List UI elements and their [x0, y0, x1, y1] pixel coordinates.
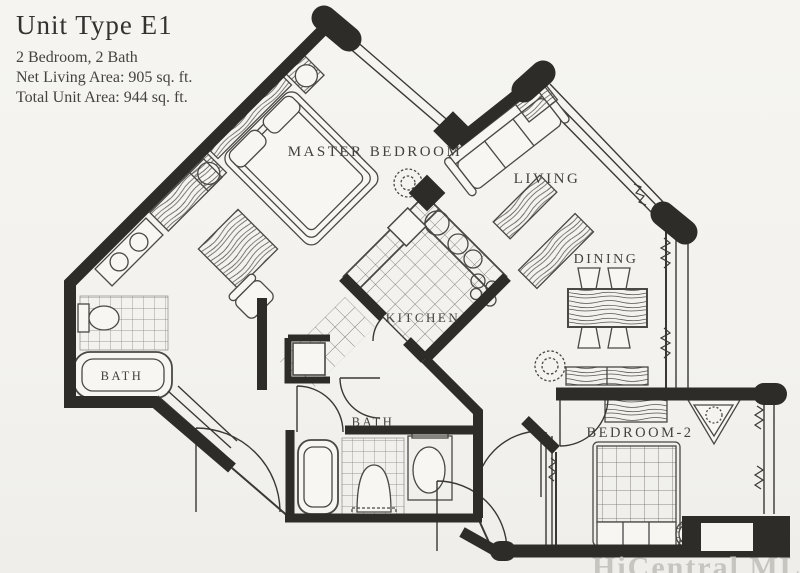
title-block: Unit Type E1 2 Bedroom, 2 Bath Net Livin… — [16, 10, 192, 108]
bedroom2-dresser — [605, 399, 667, 422]
washer-closet-unit — [293, 343, 325, 375]
label-master-bedroom: MASTER BEDROOM — [288, 144, 463, 160]
dining-chair — [608, 268, 630, 289]
master-rug — [198, 209, 277, 288]
bedroom2-pillows — [597, 522, 676, 546]
bedroom2-bed-quilt — [597, 446, 676, 522]
dining-window — [676, 232, 688, 388]
plant-dining — [535, 351, 565, 381]
label-dining: DINING — [574, 252, 639, 267]
column-cap-living-peak — [524, 73, 543, 90]
sink-2 — [413, 447, 445, 493]
toilet-bowl — [89, 306, 119, 330]
unit-title: Unit Type E1 — [16, 10, 192, 41]
dining-set — [566, 268, 648, 385]
floorplan-page: MASTER BEDROOM LIVING DINING KITCHEN BAT… — [0, 0, 800, 573]
unit-subtitle: 2 Bedroom, 2 Bath — [16, 48, 192, 68]
label-bath-1: BATH — [101, 369, 144, 383]
watermark: HiCentral MLS — [592, 551, 800, 573]
door-hall-center — [340, 378, 380, 418]
total-unit-area: Total Unit Area: 944 sq. ft. — [16, 88, 192, 108]
label-kitchen: KITCHEN — [386, 310, 461, 325]
entry-angled-wall — [462, 532, 494, 550]
toilet-tank — [78, 304, 89, 332]
dining-chair — [578, 268, 600, 289]
door-entry-b — [475, 431, 541, 497]
bedroom2-window — [764, 402, 774, 514]
column-cap-master-peak — [324, 18, 349, 39]
label-bedroom-2: BEDROOM-2 — [586, 425, 693, 441]
label-living: LIVING — [514, 171, 581, 187]
label-bath-2: BATH — [352, 415, 395, 429]
dining-chair — [578, 327, 600, 348]
net-living-area: Net Living Area: 905 sq. ft. — [16, 68, 192, 88]
column-cap-right — [663, 214, 685, 232]
ac-unit — [700, 522, 754, 552]
door-bath2 — [297, 386, 343, 432]
dining-table — [568, 289, 647, 327]
dining-chair — [608, 327, 630, 348]
